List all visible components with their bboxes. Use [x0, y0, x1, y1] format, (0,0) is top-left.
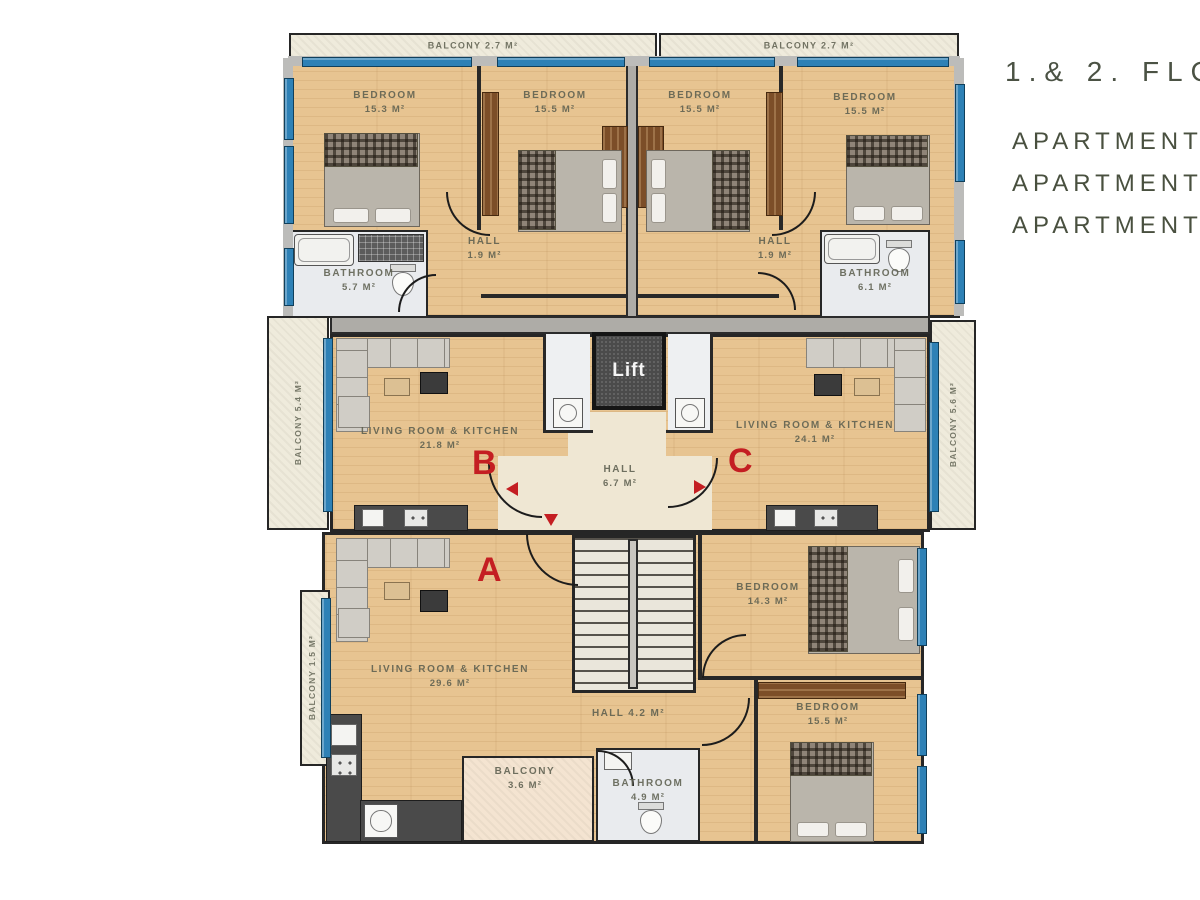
sofa-icon — [894, 338, 926, 432]
window — [497, 57, 625, 67]
wall — [666, 430, 713, 433]
washer-icon — [364, 804, 398, 838]
room-label-bedroom-c2: BEDROOM15.5 M² — [800, 92, 930, 117]
apartment-caption-3: APARTMENT — [1012, 212, 1200, 240]
room-label-bedroom-b2: BEDROOM15.5 M² — [490, 90, 620, 115]
window — [917, 766, 927, 834]
wall — [698, 535, 702, 680]
wall — [754, 680, 758, 844]
room-label-hall-c: HALL1.9 M² — [725, 236, 825, 261]
room-label-hall-center: HALL6.7 M² — [560, 464, 680, 489]
coffee-table-icon — [854, 378, 880, 396]
room-label-bathroom-b: BATHROOM5.7 M² — [296, 268, 422, 293]
tv-icon — [420, 372, 448, 394]
balcony-right-label: BALCONY 5.6 M² — [930, 320, 976, 530]
direction-arrow-right — [694, 480, 706, 494]
apartment-letter-a: A — [477, 553, 502, 587]
balcony-a-left-label: BALCONY 1.5 M² — [298, 590, 326, 766]
room-label-bedroom-a1: BEDROOM14.3 M² — [716, 582, 820, 607]
balcony-top-right: BALCONY 2.7 M² — [659, 33, 959, 58]
bed-icon — [808, 546, 920, 654]
coffee-table-icon — [384, 582, 410, 600]
room-label-hall-b: HALL1.9 M² — [432, 236, 537, 261]
apartment-caption-1: APARTMENT — [1012, 128, 1200, 156]
room-label-living-a: LIVING ROOM & KITCHEN29.6 M² — [360, 664, 540, 689]
bed-icon — [846, 135, 930, 225]
toilet-icon — [638, 802, 664, 836]
floor-plan: BALCONY 2.7 M² BALCONY 2.7 M² — [0, 0, 1200, 900]
window — [649, 57, 775, 67]
balcony-top-left-label: BALCONY 2.7 M² — [291, 40, 655, 50]
bed-icon — [646, 150, 750, 232]
shower-icon — [358, 234, 424, 262]
bathtub-icon — [294, 234, 354, 266]
window — [797, 57, 949, 67]
apartment-letter-c: C — [728, 444, 753, 478]
stove-icon — [814, 509, 838, 527]
room-label-bathroom-a: BATHROOM4.9 M² — [598, 778, 698, 803]
coffee-table-icon — [384, 378, 410, 396]
apartment-letter-b: B — [472, 446, 497, 480]
room-label-bedroom-b1: BEDROOM15.3 M² — [320, 90, 450, 115]
wall — [481, 294, 626, 298]
direction-arrow-left — [506, 482, 518, 496]
wall — [543, 334, 546, 432]
window — [955, 84, 965, 182]
balcony-left-label: BALCONY 5.4 M² — [267, 316, 329, 530]
tv-icon — [814, 374, 842, 396]
stair-rail — [628, 539, 638, 689]
direction-arrow-down — [544, 514, 558, 526]
room-label-bathroom-c: BATHROOM6.1 M² — [822, 268, 928, 293]
room-label-hall-a: HALL 4.2 M² — [592, 708, 665, 719]
tv-icon — [420, 590, 448, 612]
sink-icon — [774, 509, 796, 527]
bathtub-icon — [824, 234, 880, 264]
bed-icon — [518, 150, 622, 232]
armchair-icon — [338, 608, 370, 638]
sink-icon — [362, 509, 384, 527]
stove-icon — [331, 754, 357, 776]
bed-icon — [790, 742, 874, 842]
balcony-top-right-label: BALCONY 2.7 M² — [661, 40, 957, 50]
room-label-living-c: LIVING ROOM & KITCHEN24.1 M² — [730, 420, 900, 445]
room-label-bedroom-c1: BEDROOM15.5 M² — [635, 90, 765, 115]
window — [284, 248, 294, 306]
sink-icon — [331, 724, 357, 746]
window — [955, 240, 965, 304]
window — [917, 548, 927, 646]
window — [284, 78, 294, 140]
room-label-bedroom-a2: BEDROOM15.5 M² — [768, 702, 888, 727]
wall — [710, 334, 713, 432]
wall — [543, 430, 593, 433]
room-label-living-b: LIVING ROOM & KITCHEN21.8 M² — [355, 426, 525, 451]
room-label-balcony-a: BALCONY3.6 M² — [470, 766, 580, 791]
armchair-icon — [338, 396, 370, 428]
washer-icon — [675, 398, 705, 428]
window — [302, 57, 472, 67]
stove-icon — [404, 509, 428, 527]
apartment-caption-2: APARTMENT — [1012, 170, 1200, 198]
window — [917, 694, 927, 756]
bed-icon — [324, 133, 420, 227]
floor-title: 1.& 2. FLO — [1005, 56, 1200, 88]
washer-icon — [553, 398, 583, 428]
window — [284, 146, 294, 224]
balcony-top-left: BALCONY 2.7 M² — [289, 33, 657, 58]
wardrobe-icon — [758, 682, 906, 699]
lift: Lift — [592, 332, 666, 410]
